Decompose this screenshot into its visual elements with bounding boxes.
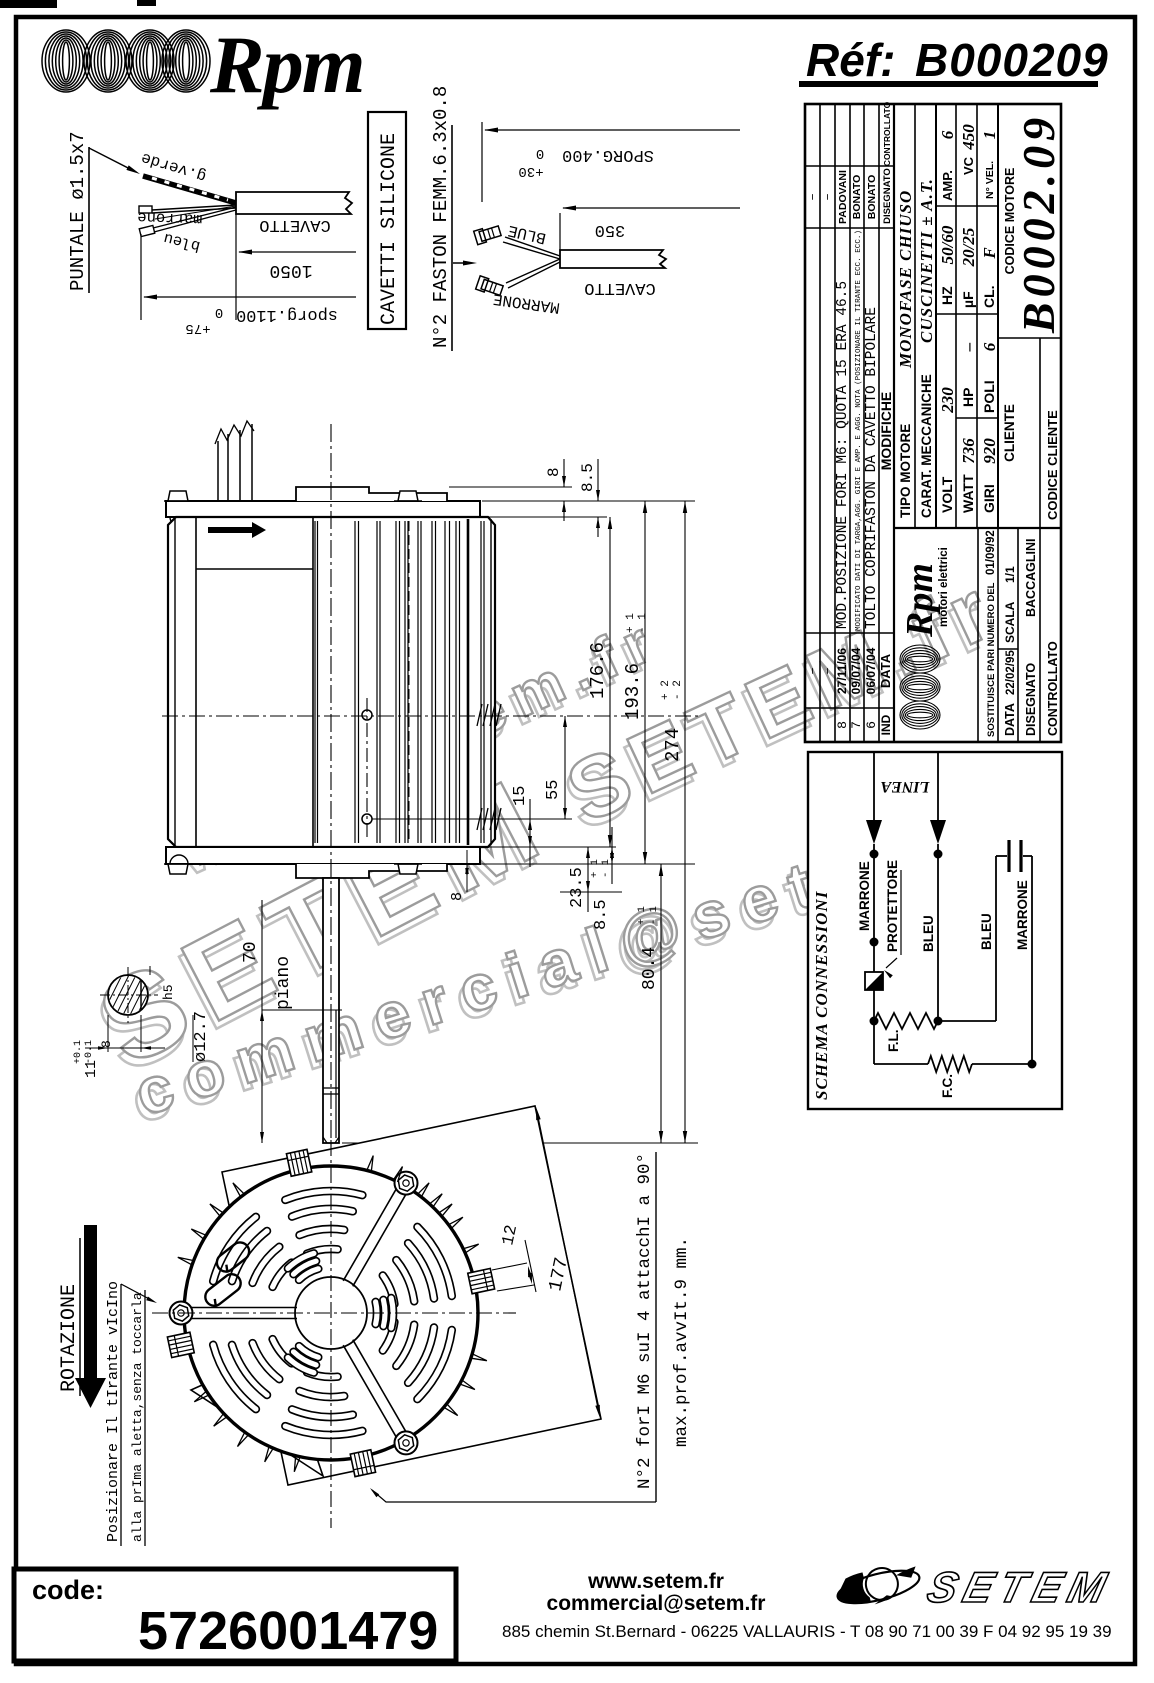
svg-text:ROTAZIONE: ROTAZIONE [58, 1284, 81, 1392]
svg-text:CL.: CL. [981, 285, 997, 308]
svg-text:BACCAGLINI: BACCAGLINI [1024, 539, 1038, 617]
svg-text:BONATO: BONATO [866, 175, 878, 220]
svg-text:MODIFICATO DATI DI TARGA,AGG.: MODIFICATO DATI DI TARGA,AGG. GIRI E AMP… [855, 230, 863, 631]
svg-text:1050: 1050 [269, 260, 312, 280]
svg-text:code:: code: [32, 1575, 104, 1605]
svg-text:B0002.09: B0002.09 [1013, 113, 1064, 334]
svg-text:CAVETTO: CAVETTO [259, 215, 330, 234]
svg-text:GIRI: GIRI [981, 484, 997, 513]
svg-text:POLI: POLI [981, 380, 997, 413]
svg-text:- 1: - 1 [637, 613, 649, 633]
svg-text:AMP.: AMP. [940, 170, 955, 201]
svg-text:SPORG.400: SPORG.400 [562, 145, 654, 164]
svg-text:CARAT. MECCANICHE: CARAT. MECCANICHE [919, 374, 934, 518]
svg-text:HP: HP [960, 388, 976, 407]
svg-text:+ 1: + 1 [625, 613, 637, 633]
svg-text:–: – [820, 667, 835, 675]
svg-text:- 2: - 2 [672, 680, 684, 700]
svg-text:max.prof.avvIt.9 mm.: max.prof.avvIt.9 mm. [672, 1237, 692, 1447]
svg-text:PUNTALE ø1.5x7: PUNTALE ø1.5x7 [67, 131, 89, 291]
svg-text:8.5: 8.5 [592, 899, 611, 930]
svg-text:–: – [805, 667, 820, 675]
svg-text:CUSCINETTI ± A.T.: CUSCINETTI ± A.T. [917, 178, 936, 343]
svg-text:SCHEMA CONNESSIONI: SCHEMA CONNESSIONI [812, 890, 831, 1100]
svg-text:920: 920 [980, 438, 999, 464]
svg-text:+ 1: + 1 [636, 906, 648, 925]
svg-text:CODICE CLIENTE: CODICE CLIENTE [1045, 410, 1060, 520]
svg-text:CONTROLLATO: CONTROLLATO [882, 101, 892, 166]
svg-text:736: 736 [959, 438, 978, 464]
svg-text:+0.1: +0.1 [73, 1040, 84, 1064]
svg-text:piano: piano [274, 956, 294, 1010]
svg-text:+30: +30 [518, 163, 543, 179]
svg-text:09/07/04: 09/07/04 [849, 647, 863, 694]
svg-text:176.6: 176.6 [587, 642, 609, 699]
svg-text:7: 7 [849, 721, 864, 729]
svg-text:8.5: 8.5 [579, 463, 597, 492]
svg-text:15: 15 [511, 786, 530, 806]
svg-text:70: 70 [241, 941, 261, 963]
svg-text:TIPO MOTORE: TIPO MOTORE [898, 424, 913, 518]
svg-text:5726001479: 5726001479 [138, 1601, 438, 1661]
svg-text:CONTROLLATO: CONTROLLATO [1046, 641, 1060, 736]
svg-text:23.5: 23.5 [568, 867, 587, 908]
svg-text:HZ: HZ [939, 286, 955, 305]
svg-text:F: F [980, 247, 999, 260]
svg-text:22/02/95: 22/02/95 [1005, 650, 1017, 695]
svg-text:IND: IND [879, 714, 893, 735]
svg-text:SOSTITUISCE PARI NUMERO DEL: SOSTITUISCE PARI NUMERO DEL [986, 582, 997, 737]
svg-text:55: 55 [544, 780, 563, 800]
svg-text:- 1: - 1 [600, 859, 612, 878]
svg-text:MARRONE: MARRONE [857, 861, 872, 931]
svg-text:- 1: - 1 [648, 906, 660, 925]
svg-text:VOLT: VOLT [939, 476, 955, 513]
svg-text:DISEGNATO: DISEGNATO [1024, 663, 1038, 736]
svg-text:VC: VC [961, 156, 976, 175]
svg-text:PADOVANI: PADOVANI [837, 170, 849, 224]
svg-text:CAVETTI SILICONE: CAVETTI SILICONE [378, 133, 401, 325]
svg-text:DATA: DATA [878, 653, 893, 688]
svg-text:alla prIma aletta,senza toccar: alla prIma aletta,senza toccarla [130, 1292, 145, 1542]
svg-text:MOD.POSIZIONE FORI M6: QUOTA 1: MOD.POSIZIONE FORI M6: QUOTA 15 ERA 46.5 [835, 281, 851, 629]
svg-text:Posizionare Il tIrante vIcIno: Posizionare Il tIrante vIcIno [105, 1281, 122, 1542]
svg-text:www.setem.fr: www.setem.fr [587, 1570, 724, 1593]
svg-text:commercial@setem.fr: commercial@setem.fr [547, 1592, 766, 1615]
svg-text:N°2 FASTON FEMM.6.3x0.8: N°2 FASTON FEMM.6.3x0.8 [430, 86, 452, 348]
svg-text:h5: h5 [161, 984, 176, 1000]
svg-text:LINEA: LINEA [880, 778, 930, 795]
svg-text:20/25: 20/25 [959, 227, 978, 267]
svg-text:CLIENTE: CLIENTE [1002, 404, 1017, 462]
svg-text:+ 2: + 2 [660, 680, 672, 700]
svg-text:WATT: WATT [960, 474, 976, 513]
svg-text:MODIFICHE: MODIFICHE [878, 392, 894, 471]
svg-text:6: 6 [980, 342, 999, 351]
svg-text:–: – [805, 193, 820, 201]
svg-text:SETEM: SETEM [923, 1564, 1118, 1612]
svg-text:8: 8 [835, 721, 850, 729]
svg-text:Réf:: Réf: [806, 34, 895, 86]
svg-text:50/60: 50/60 [938, 225, 957, 264]
svg-text:N°2 forI M6 suI 4 attacchI a 9: N°2 forI M6 suI 4 attacchI a 90° [635, 1153, 655, 1489]
svg-text:B000209: B000209 [915, 34, 1109, 86]
svg-text:Rpm: Rpm [209, 19, 363, 110]
svg-text:DISEGNATO: DISEGNATO [882, 168, 893, 224]
svg-text:230: 230 [938, 387, 957, 414]
svg-text:8: 8 [99, 1040, 114, 1048]
svg-text:F.C.: F.C. [940, 1074, 955, 1098]
svg-text:1/1: 1/1 [1003, 566, 1017, 583]
svg-text:193.6: 193.6 [622, 663, 644, 720]
svg-text:8: 8 [449, 892, 466, 901]
svg-text:ø12.7: ø12.7 [192, 1011, 211, 1062]
svg-text:PROTETTORE: PROTETTORE [885, 860, 900, 952]
svg-text:0: 0 [536, 145, 544, 161]
svg-text:MARRONE: MARRONE [1015, 880, 1030, 950]
svg-text:01/09/92: 01/09/92 [985, 530, 997, 575]
svg-text:N° VEL.: N° VEL. [984, 161, 996, 199]
svg-text:0: 0 [215, 304, 223, 320]
svg-text:6: 6 [864, 721, 879, 729]
svg-text:CAVETTO: CAVETTO [584, 278, 655, 297]
svg-text:SCALA: SCALA [1003, 601, 1017, 643]
svg-text:µF: µF [960, 291, 976, 308]
svg-text:BLEU: BLEU [921, 915, 936, 952]
svg-text:BONATO: BONATO [851, 175, 863, 220]
svg-text:–: – [820, 193, 835, 201]
svg-text:06/07/04: 06/07/04 [864, 647, 878, 694]
svg-text:274: 274 [662, 728, 684, 762]
svg-text:sporg.1100: sporg.1100 [236, 305, 338, 324]
svg-text:–: – [959, 342, 978, 352]
svg-text:DATA: DATA [1003, 703, 1017, 736]
svg-text:6: 6 [938, 130, 957, 139]
svg-text:-0.1: -0.1 [84, 1040, 95, 1064]
svg-text:Rpm: Rpm [899, 563, 941, 638]
svg-text:8: 8 [545, 467, 563, 477]
svg-text:27/11/06: 27/11/06 [835, 648, 849, 694]
svg-text:1: 1 [980, 131, 999, 140]
svg-text:885 chemin St.Bernard - 0622: 885 chemin St.Bernard - 06225 VALLAURIS … [502, 1622, 1112, 1641]
svg-text:80.4: 80.4 [640, 947, 660, 990]
svg-text:MONOFASE CHIUSO: MONOFASE CHIUSO [896, 190, 915, 369]
svg-text:BLEU: BLEU [979, 913, 994, 950]
svg-text:motori elettrici: motori elettrici [938, 547, 950, 627]
svg-text:F.L.: F.L. [886, 1030, 901, 1053]
svg-text:450: 450 [959, 124, 978, 151]
svg-text:350: 350 [595, 220, 626, 239]
svg-text:+75: +75 [185, 320, 210, 336]
